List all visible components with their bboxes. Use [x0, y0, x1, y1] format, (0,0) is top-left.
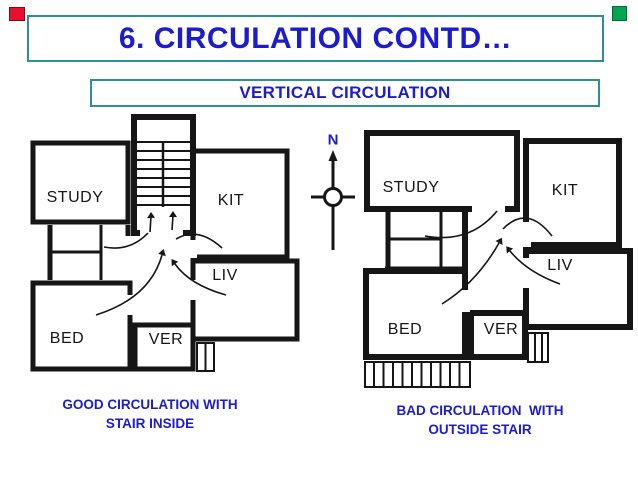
right-floor-plan: N STUDY KIT LIV BED VER	[305, 112, 638, 397]
slide-subtitle: VERTICAL CIRCULATION	[239, 83, 450, 103]
slide-canvas: 6. CIRCULATION CONTD… VERTICAL CIRCULATI…	[0, 0, 638, 479]
left-room-bed: BED	[50, 330, 84, 348]
left-entry-step-hatch	[197, 343, 214, 371]
left-stair-treads	[137, 142, 190, 207]
right-floor-plan-drawing	[305, 112, 638, 397]
left-room-ver: VER	[149, 331, 183, 349]
left-closet-walls	[50, 225, 128, 280]
left-room-study: STUDY	[47, 189, 104, 207]
left-caption-line2: STAIR INSIDE	[20, 414, 280, 433]
right-plan-caption: BAD CIRCULATION WITH OUTSIDE STAIR	[350, 401, 610, 439]
title-box: 6. CIRCULATION CONTD…	[27, 15, 604, 62]
outside-stair-hatch	[365, 362, 470, 387]
left-caption-line1: GOOD CIRCULATION WITH	[20, 395, 280, 414]
green-corner-marker	[612, 6, 627, 21]
left-plan-caption: GOOD CIRCULATION WITH STAIR INSIDE	[20, 395, 280, 433]
north-arrow-drawing	[311, 150, 355, 250]
right-caption-line1: BAD CIRCULATION WITH	[350, 401, 610, 420]
red-corner-marker	[9, 7, 25, 21]
right-room-kit: KIT	[552, 182, 578, 200]
right-entry-step-hatch	[528, 333, 548, 362]
right-circulation-arrows	[425, 211, 560, 304]
left-room-kit: KIT	[218, 192, 244, 210]
left-room-liv: LIV	[212, 267, 238, 285]
north-label: N	[328, 132, 339, 149]
right-room-ver: VER	[484, 321, 518, 339]
slide-title: 6. CIRCULATION CONTD…	[119, 22, 512, 56]
right-room-bed: BED	[388, 321, 422, 339]
right-caption-line2: OUTSIDE STAIR	[350, 420, 610, 439]
left-floor-plan: STUDY KIT LIV BED VER	[28, 112, 308, 374]
right-room-liv: LIV	[547, 257, 573, 275]
subtitle-box: VERTICAL CIRCULATION	[90, 79, 600, 107]
right-closet-walls	[385, 212, 468, 270]
right-room-study: STUDY	[383, 179, 440, 197]
right-door-openings	[461, 205, 531, 312]
